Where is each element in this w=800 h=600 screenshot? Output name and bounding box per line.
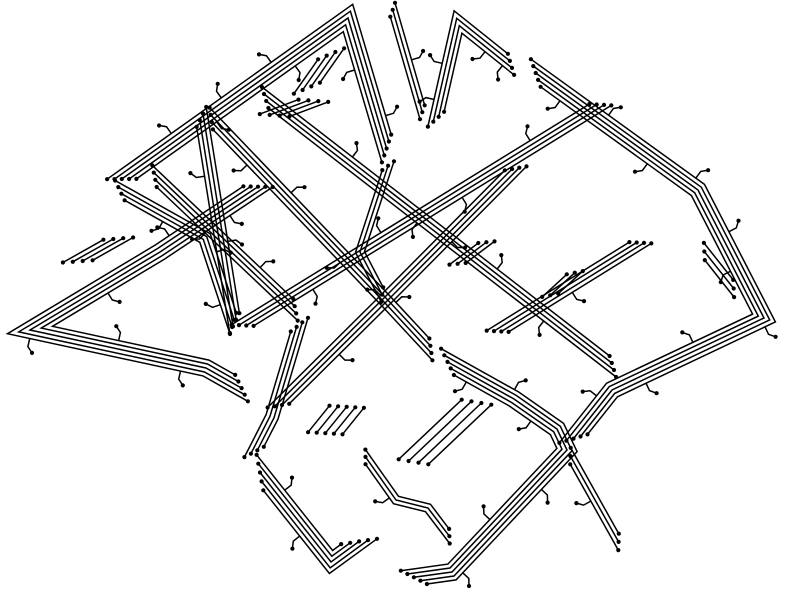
via-dot bbox=[469, 399, 473, 403]
trace-line bbox=[386, 107, 398, 116]
via-dot bbox=[425, 582, 429, 586]
via-dot bbox=[467, 584, 471, 588]
via-dot bbox=[157, 123, 161, 127]
via-dot bbox=[460, 398, 464, 402]
trace-line bbox=[263, 490, 377, 573]
via-dot bbox=[431, 120, 435, 124]
road-topright-to-right-wedge bbox=[529, 57, 778, 445]
via-dot bbox=[395, 105, 399, 109]
via-dot bbox=[363, 455, 367, 459]
via-dot bbox=[412, 575, 416, 579]
via-dot bbox=[565, 272, 569, 276]
via-dot bbox=[617, 540, 621, 544]
via-dot bbox=[736, 219, 740, 223]
via-dot bbox=[201, 112, 205, 116]
via-dot bbox=[268, 113, 272, 117]
via-dot bbox=[616, 548, 620, 552]
via-dot bbox=[499, 253, 503, 257]
trace-line bbox=[536, 73, 764, 439]
via-dot bbox=[134, 177, 138, 181]
via-dot bbox=[392, 159, 396, 163]
trace-line bbox=[325, 407, 346, 433]
via-dot bbox=[379, 300, 383, 304]
via-dot bbox=[568, 454, 572, 458]
via-dot bbox=[258, 470, 262, 474]
fan-topleft-apex-stub-row bbox=[292, 46, 346, 96]
via-dot bbox=[492, 239, 496, 243]
trace-line bbox=[212, 122, 432, 353]
via-dot bbox=[292, 92, 296, 96]
via-dot bbox=[295, 325, 299, 329]
via-dot bbox=[447, 534, 451, 538]
via-dot bbox=[437, 115, 441, 119]
via-dot bbox=[260, 85, 264, 89]
via-dot bbox=[121, 236, 125, 240]
trace-line bbox=[116, 326, 120, 340]
trace-line bbox=[292, 536, 299, 549]
via-dot bbox=[479, 401, 483, 405]
via-dot bbox=[261, 488, 265, 492]
trace-line bbox=[295, 66, 300, 80]
via-dot bbox=[732, 295, 736, 299]
trace-line bbox=[519, 421, 531, 429]
road-bottomright-tail bbox=[568, 446, 621, 552]
via-dot bbox=[315, 431, 319, 435]
via-dot bbox=[210, 120, 214, 124]
via-dot bbox=[366, 538, 370, 542]
trace-line bbox=[217, 84, 222, 98]
trace-line bbox=[420, 98, 434, 102]
via-dot bbox=[445, 360, 449, 364]
via-dot bbox=[290, 476, 294, 480]
via-dot bbox=[240, 222, 244, 226]
via-dot bbox=[249, 452, 253, 456]
trace-line bbox=[412, 51, 424, 60]
via-dot bbox=[512, 73, 516, 77]
trace-line bbox=[311, 52, 335, 86]
trace-line bbox=[414, 362, 567, 577]
via-dot bbox=[453, 389, 457, 393]
via-dot bbox=[517, 166, 521, 170]
via-dot bbox=[389, 133, 393, 137]
via-dot bbox=[484, 240, 488, 244]
trace-line bbox=[765, 327, 776, 337]
via-dot bbox=[362, 406, 366, 410]
via-dot bbox=[429, 351, 433, 355]
trace-line bbox=[262, 87, 610, 356]
via-dot bbox=[426, 462, 430, 466]
via-dot bbox=[116, 185, 120, 189]
trace-line bbox=[211, 115, 431, 346]
trace-line bbox=[526, 126, 530, 140]
via-dot bbox=[388, 15, 392, 19]
trace-line bbox=[377, 218, 381, 232]
trace-line bbox=[234, 165, 247, 171]
via-dot bbox=[262, 445, 266, 449]
via-dot bbox=[568, 462, 572, 466]
lattice-road-nesw-right bbox=[485, 240, 654, 334]
via-dot bbox=[496, 77, 500, 81]
via-dot bbox=[548, 293, 552, 297]
via-dot bbox=[181, 383, 185, 387]
via-dot bbox=[237, 323, 241, 327]
via-dot bbox=[399, 569, 403, 573]
via-dot bbox=[316, 57, 320, 61]
via-dot bbox=[649, 241, 653, 245]
trace-line bbox=[334, 407, 355, 433]
trace-line bbox=[548, 101, 560, 109]
via-dot bbox=[448, 541, 452, 545]
via-dot bbox=[430, 358, 434, 362]
via-dot bbox=[271, 259, 275, 263]
trace-line bbox=[484, 506, 490, 519]
via-dot bbox=[418, 579, 422, 583]
via-dot bbox=[449, 366, 453, 370]
trace-line bbox=[320, 48, 344, 82]
trace-line bbox=[343, 408, 364, 435]
via-dot bbox=[582, 299, 586, 303]
via-dot bbox=[416, 461, 420, 465]
via-dot bbox=[556, 292, 560, 296]
trace-line bbox=[427, 349, 577, 584]
via-dot bbox=[61, 260, 65, 264]
via-dot bbox=[204, 105, 208, 109]
via-dot bbox=[578, 434, 582, 438]
via-dot bbox=[258, 112, 262, 116]
via-dot bbox=[382, 153, 386, 157]
trace-line bbox=[289, 166, 526, 403]
via-dot bbox=[190, 237, 194, 241]
via-dot bbox=[375, 537, 379, 541]
via-dot bbox=[237, 311, 241, 315]
via-dot bbox=[447, 263, 451, 267]
via-dot bbox=[240, 386, 244, 390]
via-dot bbox=[376, 216, 380, 220]
via-dot bbox=[287, 402, 291, 406]
via-dot bbox=[240, 242, 244, 246]
via-dot bbox=[313, 302, 317, 306]
fan-topright-hairpin bbox=[418, 11, 517, 129]
trace-line bbox=[159, 126, 171, 134]
trace-line bbox=[375, 498, 389, 503]
via-dot bbox=[774, 335, 778, 339]
via-dot bbox=[309, 84, 313, 88]
trace-line bbox=[28, 339, 32, 353]
via-dot bbox=[211, 127, 215, 131]
via-dot bbox=[510, 167, 514, 171]
trace-line bbox=[463, 573, 469, 586]
trace-line bbox=[401, 375, 557, 571]
trace-line bbox=[313, 289, 317, 303]
via-dot bbox=[243, 393, 247, 397]
via-dot bbox=[428, 344, 432, 348]
via-dot bbox=[236, 379, 240, 383]
via-dot bbox=[198, 118, 202, 122]
via-dot bbox=[155, 225, 159, 229]
via-dot bbox=[442, 353, 446, 357]
trace-line bbox=[419, 403, 482, 463]
trace-line bbox=[455, 382, 466, 391]
via-dot bbox=[244, 323, 248, 327]
via-dot bbox=[427, 336, 431, 340]
trace-line bbox=[206, 304, 221, 307]
trace-line bbox=[635, 164, 647, 172]
via-dot bbox=[534, 71, 538, 75]
trace-line bbox=[390, 17, 420, 120]
via-dot bbox=[452, 373, 456, 377]
via-dot bbox=[306, 316, 310, 320]
via-dot bbox=[538, 333, 542, 337]
trace-line bbox=[570, 456, 618, 542]
via-dot bbox=[342, 46, 346, 50]
trace-line bbox=[339, 354, 352, 360]
via-dot bbox=[256, 185, 260, 189]
via-dot bbox=[118, 300, 122, 304]
via-dot bbox=[232, 168, 236, 172]
via-dot bbox=[155, 185, 159, 189]
trace-line bbox=[515, 380, 526, 389]
via-dot bbox=[381, 285, 385, 289]
trace-line bbox=[259, 54, 271, 62]
via-dot bbox=[456, 262, 460, 266]
via-dot bbox=[373, 499, 377, 503]
via-dot bbox=[655, 391, 659, 395]
via-dot bbox=[150, 163, 154, 167]
via-dot bbox=[529, 57, 533, 61]
trace-line bbox=[396, 297, 410, 303]
via-dot bbox=[318, 81, 322, 85]
via-dot bbox=[255, 448, 259, 452]
trace-line bbox=[609, 107, 621, 115]
via-dot bbox=[482, 504, 486, 508]
trace-line bbox=[200, 120, 233, 326]
trace-line bbox=[395, 3, 425, 106]
via-dot bbox=[619, 105, 623, 109]
via-dot bbox=[702, 241, 706, 245]
trace-line bbox=[576, 501, 590, 505]
trace-line bbox=[303, 56, 327, 90]
via-dot bbox=[252, 324, 256, 328]
via-dot bbox=[489, 403, 493, 407]
via-dot bbox=[507, 330, 511, 334]
via-dot bbox=[411, 235, 415, 239]
trace-line bbox=[317, 406, 338, 432]
via-dot bbox=[264, 99, 268, 103]
trace-line bbox=[473, 52, 486, 59]
via-dot bbox=[386, 164, 390, 168]
via-dot bbox=[702, 249, 706, 253]
via-dot bbox=[380, 293, 384, 297]
trace-line bbox=[705, 260, 734, 297]
via-dot bbox=[216, 82, 220, 86]
via-dot bbox=[397, 457, 401, 461]
via-dot bbox=[113, 178, 117, 182]
via-dot bbox=[290, 547, 294, 551]
via-dot bbox=[266, 106, 270, 110]
trace-line bbox=[190, 173, 204, 177]
via-dot bbox=[293, 304, 297, 308]
via-dot bbox=[405, 572, 409, 576]
stub-bottom-short-row bbox=[306, 404, 366, 437]
via-dot bbox=[428, 53, 432, 57]
trace-line bbox=[572, 292, 584, 301]
trace-line bbox=[285, 478, 292, 491]
via-dot bbox=[262, 92, 266, 96]
via-dot bbox=[574, 501, 578, 505]
road-top-center bbox=[388, 1, 427, 122]
via-dot bbox=[680, 330, 684, 334]
trace-line bbox=[366, 464, 450, 543]
lattice-road-nesw-center bbox=[266, 164, 529, 409]
via-dot bbox=[195, 125, 199, 129]
via-dot bbox=[380, 160, 384, 164]
trace-line bbox=[399, 400, 462, 460]
via-dot bbox=[209, 113, 213, 117]
via-dot bbox=[204, 302, 208, 306]
circuit-board-art bbox=[0, 0, 800, 600]
via-dot bbox=[581, 390, 585, 394]
via-dot bbox=[731, 278, 735, 282]
via-dot bbox=[81, 259, 85, 263]
via-dot bbox=[524, 378, 528, 382]
via-dot bbox=[503, 168, 507, 172]
via-dot bbox=[464, 261, 468, 265]
via-dot bbox=[255, 453, 259, 457]
via-dot bbox=[612, 368, 616, 372]
trace-line bbox=[696, 170, 708, 178]
via-dot bbox=[242, 455, 246, 459]
via-dot bbox=[323, 431, 327, 435]
circuit-svg bbox=[0, 0, 800, 600]
via-dot bbox=[581, 269, 585, 273]
trace-line bbox=[487, 242, 630, 331]
via-dot bbox=[387, 139, 391, 143]
via-dot bbox=[407, 459, 411, 463]
via-dot bbox=[539, 85, 543, 89]
via-dot bbox=[524, 164, 528, 168]
trace-layer bbox=[8, 1, 778, 588]
via-dot bbox=[418, 117, 422, 121]
trace-line bbox=[107, 4, 391, 179]
via-dot bbox=[257, 52, 261, 56]
trace-line bbox=[509, 243, 652, 332]
via-dot bbox=[492, 329, 496, 333]
via-dot bbox=[642, 241, 646, 245]
via-dot bbox=[111, 237, 115, 241]
trace-line bbox=[291, 187, 305, 193]
via-dot bbox=[306, 98, 310, 102]
via-dot bbox=[153, 178, 157, 182]
via-dot bbox=[546, 501, 550, 505]
via-dot bbox=[363, 448, 367, 452]
via-dot bbox=[573, 271, 577, 275]
via-dot bbox=[30, 351, 34, 355]
via-dot bbox=[333, 50, 337, 54]
trace-line bbox=[232, 104, 590, 325]
trace-line bbox=[260, 261, 273, 267]
via-dot bbox=[234, 318, 238, 322]
via-dot bbox=[421, 49, 425, 53]
via-dot bbox=[703, 258, 707, 262]
trace-line bbox=[179, 371, 183, 385]
via-dot bbox=[152, 171, 156, 175]
via-dot bbox=[420, 110, 424, 114]
via-dot bbox=[316, 99, 320, 103]
via-dot bbox=[249, 184, 253, 188]
via-dot bbox=[231, 324, 235, 328]
via-dot bbox=[131, 235, 135, 239]
via-dot bbox=[149, 229, 153, 233]
via-dot bbox=[426, 125, 430, 129]
via-dot bbox=[188, 171, 192, 175]
via-dot bbox=[587, 102, 591, 106]
via-dot bbox=[326, 100, 330, 104]
via-dot bbox=[325, 54, 329, 58]
via-dot bbox=[608, 354, 612, 358]
via-dot bbox=[536, 78, 540, 82]
via-dot bbox=[463, 245, 467, 249]
via-dot bbox=[732, 286, 736, 290]
trace-line bbox=[343, 70, 355, 79]
via-dot bbox=[617, 532, 621, 536]
via-dot bbox=[569, 446, 573, 450]
trace-line bbox=[501, 243, 644, 332]
trace-line bbox=[541, 489, 547, 502]
trace-line bbox=[531, 59, 776, 434]
via-dot bbox=[336, 404, 340, 408]
via-dot bbox=[609, 103, 613, 107]
via-dot bbox=[339, 542, 343, 546]
via-dot bbox=[385, 146, 389, 150]
loop-bottomright-edge bbox=[399, 347, 577, 589]
via-dot bbox=[105, 177, 109, 181]
trace-line bbox=[366, 457, 450, 536]
via-dot bbox=[525, 124, 529, 128]
via-dot bbox=[470, 57, 474, 61]
via-dot bbox=[602, 103, 606, 107]
via-dot bbox=[294, 311, 298, 315]
via-dot bbox=[228, 331, 232, 335]
via-dot bbox=[585, 432, 589, 436]
via-dot bbox=[123, 198, 127, 202]
trace-line bbox=[570, 464, 618, 550]
trace-line bbox=[230, 216, 242, 224]
via-dot bbox=[439, 347, 443, 351]
via-dot bbox=[391, 8, 395, 12]
via-dot bbox=[508, 59, 512, 63]
trace-line bbox=[428, 405, 491, 465]
via-dot bbox=[246, 399, 250, 403]
via-dot bbox=[289, 329, 293, 333]
via-dot bbox=[595, 102, 599, 106]
via-dot bbox=[306, 430, 310, 434]
via-dot bbox=[302, 185, 306, 189]
via-dot bbox=[706, 168, 710, 172]
via-dot bbox=[91, 258, 95, 262]
via-dot bbox=[71, 260, 75, 264]
via-dot bbox=[610, 361, 614, 365]
trace-line bbox=[430, 55, 442, 63]
via-dot bbox=[614, 375, 618, 379]
via-dot bbox=[296, 319, 300, 323]
trace-line bbox=[108, 293, 120, 302]
via-dot bbox=[345, 405, 349, 409]
via-dot bbox=[476, 241, 480, 245]
trace-line bbox=[409, 401, 472, 461]
via-dot bbox=[127, 177, 131, 181]
via-dot bbox=[241, 184, 245, 188]
trace-line bbox=[571, 448, 619, 534]
